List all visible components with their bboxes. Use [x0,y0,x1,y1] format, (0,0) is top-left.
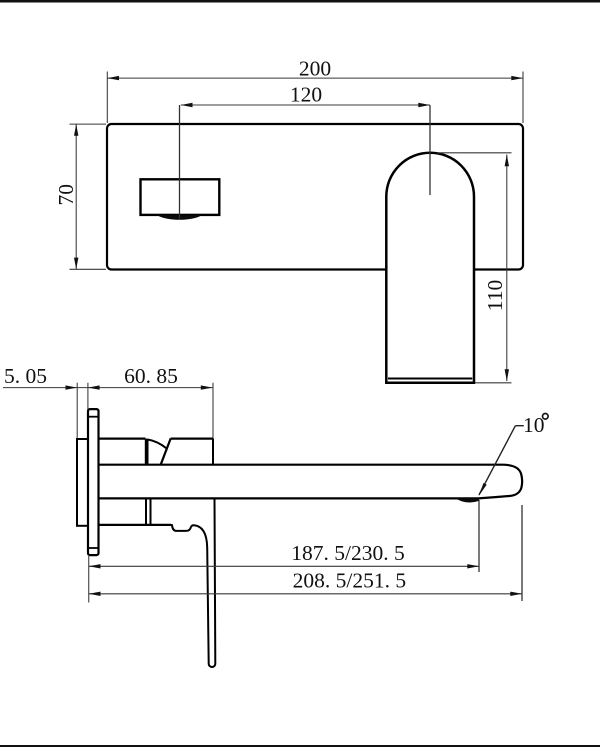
svg-text:187. 5/230. 5: 187. 5/230. 5 [291,541,404,565]
svg-text:208. 5/251. 5: 208. 5/251. 5 [293,569,406,593]
svg-text:200: 200 [299,57,331,81]
svg-text:10: 10 [523,413,545,437]
svg-text:120: 120 [290,83,322,107]
svg-text:70: 70 [54,184,78,206]
svg-text:60. 85: 60. 85 [124,364,178,388]
svg-text:5. 05: 5. 05 [4,364,47,388]
svg-text:110: 110 [483,280,507,311]
